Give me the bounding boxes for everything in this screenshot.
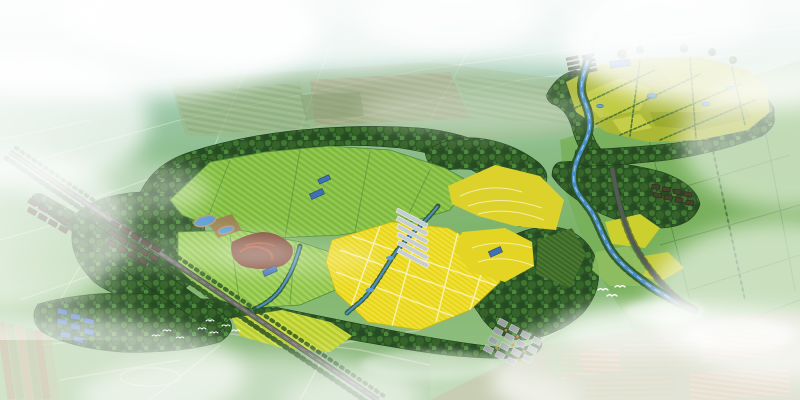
landscape-scene — [0, 0, 800, 400]
pondlet-2 — [366, 288, 375, 292]
aerial-rendering-canvas — [0, 0, 800, 400]
pondlet-1 — [386, 256, 394, 260]
